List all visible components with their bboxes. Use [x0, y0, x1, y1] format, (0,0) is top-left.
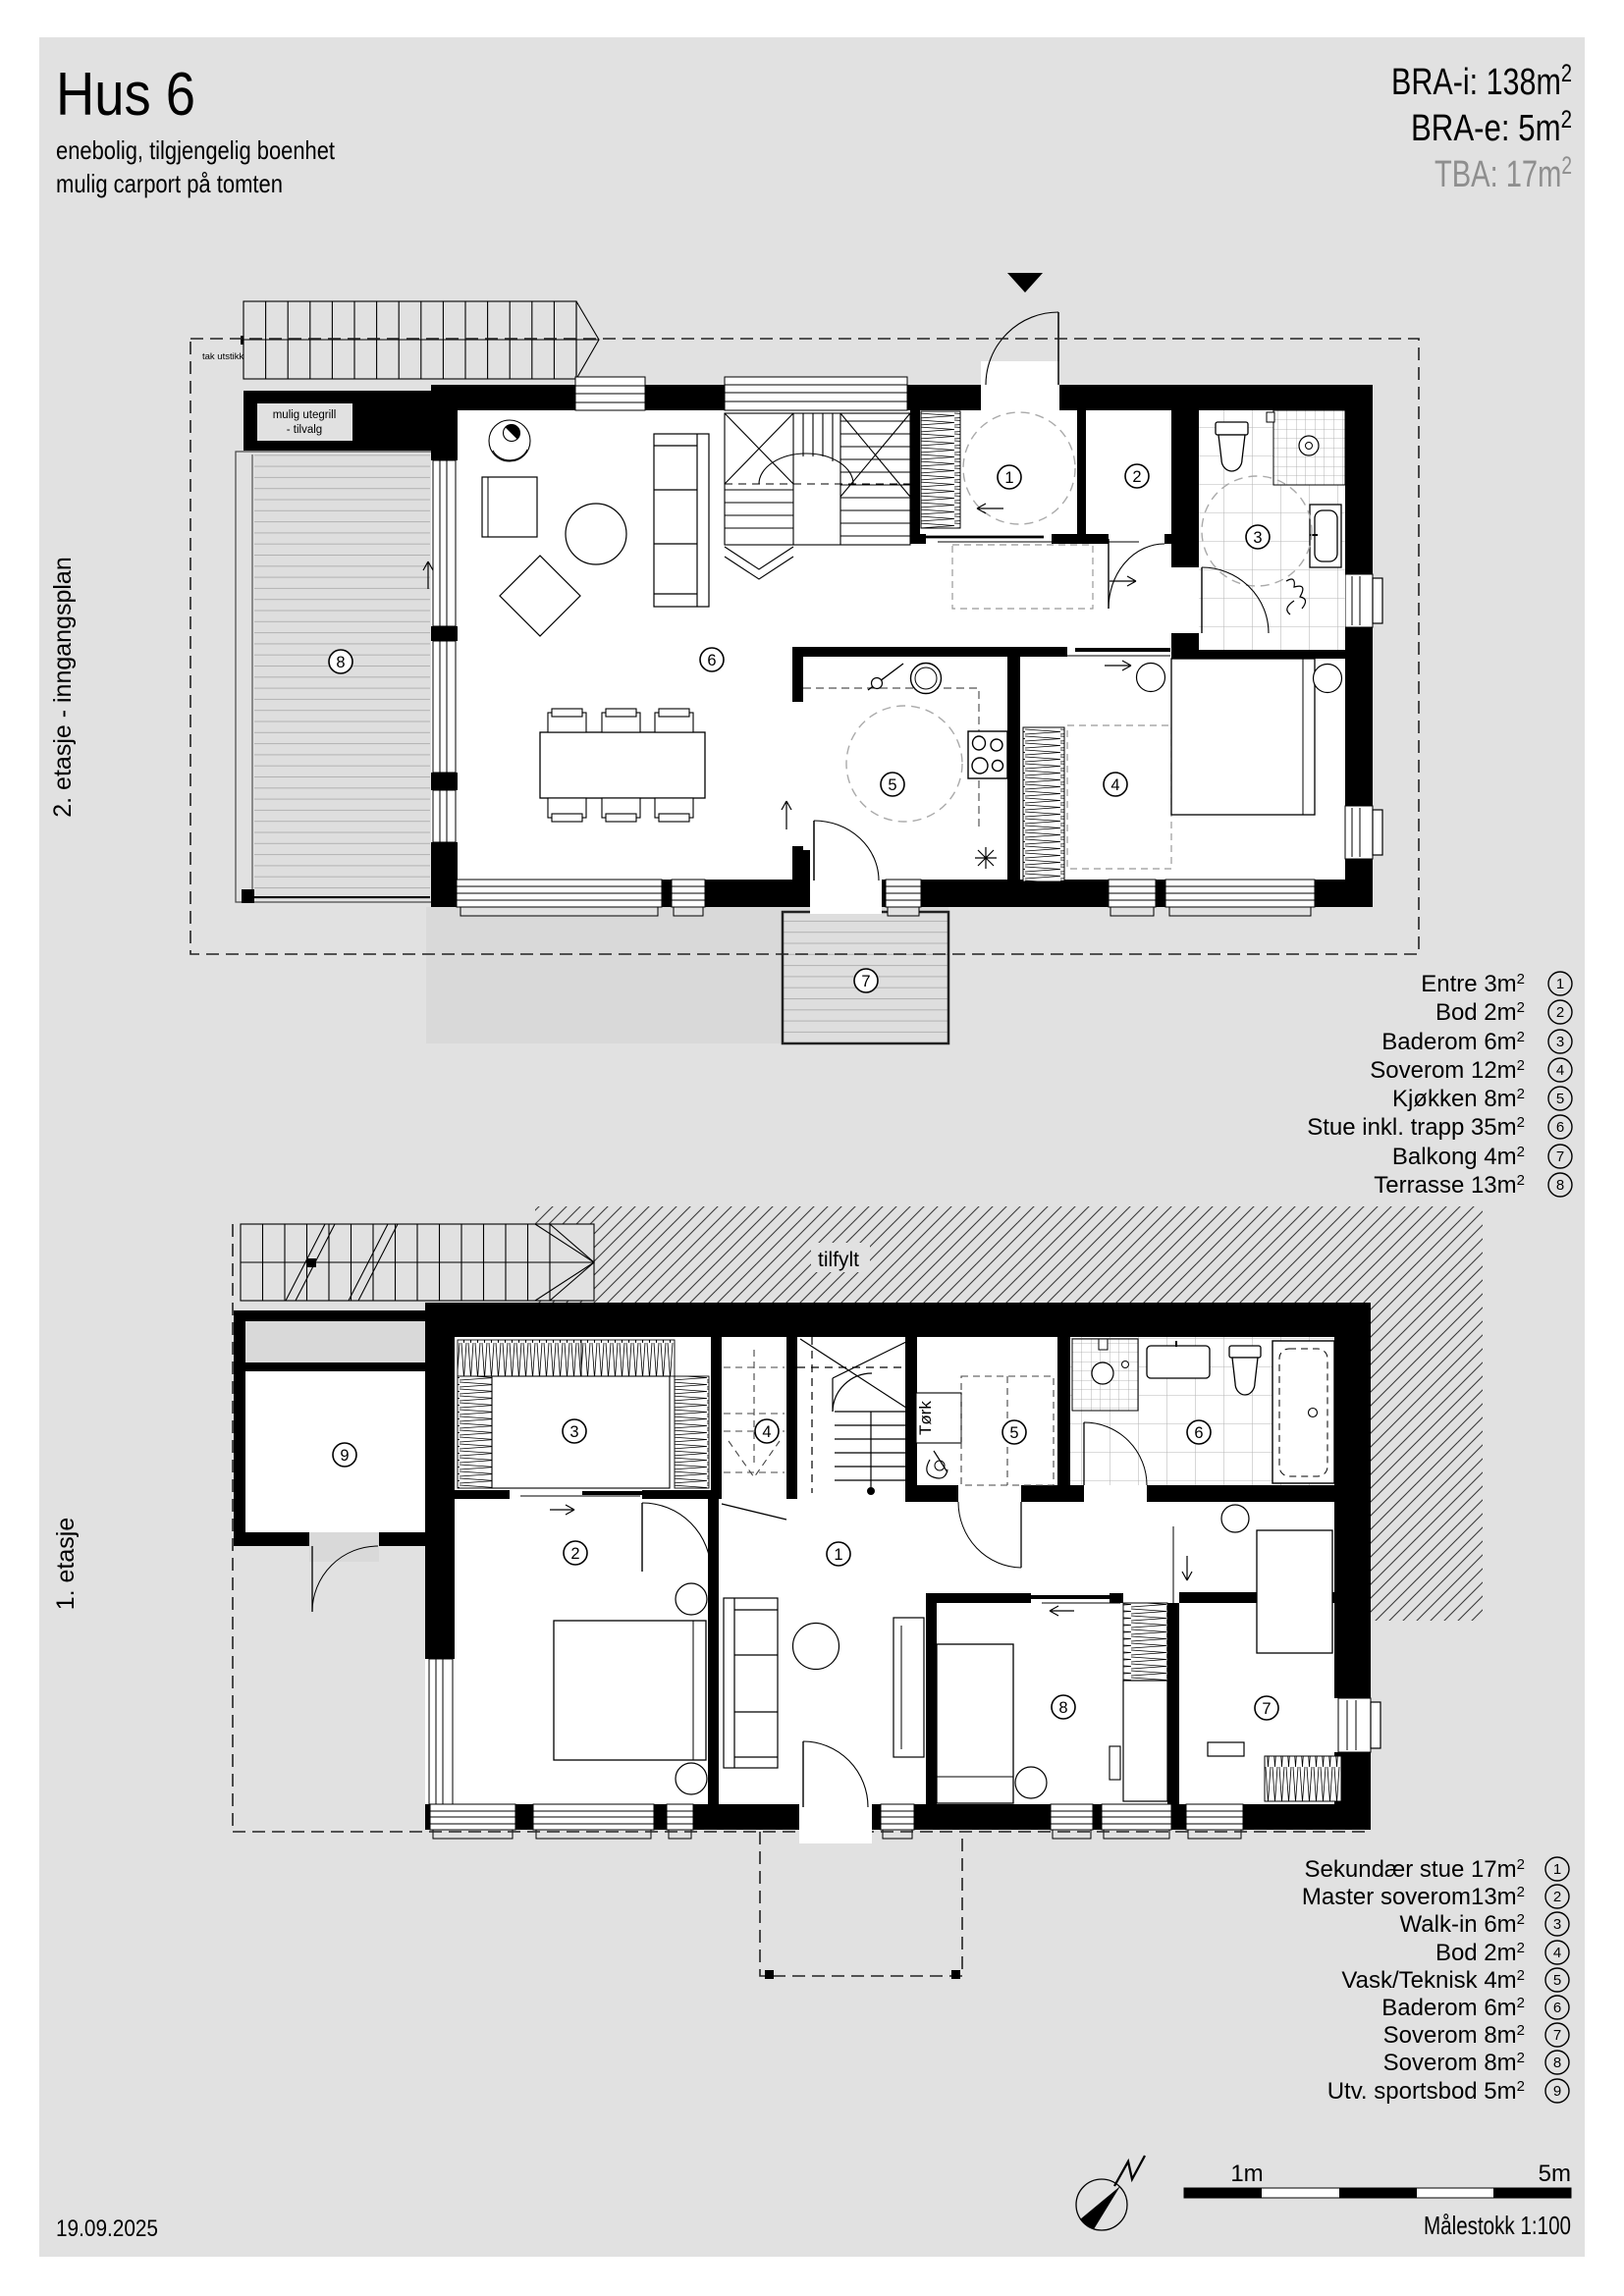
svg-text:2. etasje - inngangsplan: 2. etasje - inngangsplan — [49, 557, 77, 817]
svg-text:5: 5 — [1553, 1972, 1561, 1989]
svg-text:Målestokk 1:100: Målestokk 1:100 — [1424, 2211, 1571, 2240]
svg-text:8: 8 — [1058, 1699, 1067, 1717]
svg-text:6: 6 — [1194, 1424, 1203, 1442]
svg-text:mulig carport på tomten: mulig carport på tomten — [56, 169, 283, 198]
svg-text:2: 2 — [1132, 468, 1141, 486]
svg-text:5: 5 — [1009, 1424, 1018, 1442]
svg-text:Terrasse 13m2: Terrasse 13m2 — [1374, 1172, 1525, 1199]
svg-text:7: 7 — [1553, 2027, 1561, 2044]
svg-text:5: 5 — [1556, 1091, 1564, 1107]
svg-text:7: 7 — [1556, 1148, 1564, 1165]
svg-text:1: 1 — [1004, 469, 1013, 487]
svg-text:4: 4 — [1556, 1062, 1564, 1079]
svg-text:Kjøkken 8m2: Kjøkken 8m2 — [1392, 1086, 1525, 1112]
svg-text:Stue inkl. trapp 35m2: Stue inkl. trapp 35m2 — [1307, 1114, 1525, 1141]
svg-text:Soverom 8m2: Soverom 8m2 — [1383, 2022, 1525, 2049]
svg-text:BRA-i: 138m2: BRA-i: 138m2 — [1391, 60, 1572, 103]
svg-text:3: 3 — [1253, 529, 1262, 547]
svg-text:4: 4 — [1110, 776, 1119, 794]
svg-text:Baderom 6m2: Baderom 6m2 — [1381, 1995, 1525, 2021]
svg-text:8: 8 — [1556, 1177, 1564, 1194]
svg-text:Tørk: Tørk — [916, 1401, 935, 1435]
svg-text:Soverom 12m2: Soverom 12m2 — [1370, 1057, 1525, 1084]
svg-text:8: 8 — [1553, 2055, 1561, 2071]
svg-text:3: 3 — [569, 1423, 578, 1441]
svg-text:Soverom 8m2: Soverom 8m2 — [1383, 2050, 1525, 2076]
svg-text:Bod 2m2: Bod 2m2 — [1435, 1940, 1525, 1966]
svg-text:Sekundær stue 17m2: Sekundær stue 17m2 — [1305, 1856, 1525, 1883]
svg-text:9: 9 — [340, 1447, 349, 1465]
svg-text:Vask/Teknisk 4m2: Vask/Teknisk 4m2 — [1341, 1967, 1525, 1994]
svg-text:19.09.2025: 19.09.2025 — [56, 2216, 158, 2242]
svg-text:Entre 3m2: Entre 3m2 — [1421, 971, 1525, 997]
svg-text:Walk-in 6m2: Walk-in 6m2 — [1400, 1911, 1525, 1938]
svg-text:Master soverom13m2: Master soverom13m2 — [1302, 1884, 1525, 1910]
svg-text:5: 5 — [888, 776, 896, 794]
svg-text:6: 6 — [1556, 1119, 1564, 1136]
svg-text:8: 8 — [336, 654, 345, 671]
svg-text:Baderom 6m2: Baderom 6m2 — [1381, 1029, 1525, 1055]
svg-text:1: 1 — [1553, 1861, 1561, 1878]
svg-text:BRA-e: 5m2: BRA-e: 5m2 — [1411, 106, 1572, 149]
svg-text:2: 2 — [570, 1545, 579, 1563]
svg-text:tak utstikk: tak utstikk — [202, 351, 244, 362]
svg-text:enebolig, tilgjengelig boenhet: enebolig, tilgjengelig boenhet — [56, 135, 336, 165]
svg-text:2: 2 — [1556, 1004, 1564, 1021]
svg-text:6: 6 — [1553, 2000, 1561, 2016]
svg-text:1m: 1m — [1230, 2161, 1263, 2187]
svg-text:7: 7 — [1262, 1700, 1271, 1718]
svg-text:7: 7 — [861, 973, 870, 990]
svg-text:3: 3 — [1556, 1034, 1564, 1050]
svg-text:4: 4 — [762, 1423, 771, 1441]
svg-text:Bod 2m2: Bod 2m2 — [1435, 999, 1525, 1026]
svg-text:5m: 5m — [1539, 2161, 1571, 2187]
svg-text:tilfylt: tilfylt — [818, 1249, 859, 1271]
svg-text:9: 9 — [1553, 2083, 1561, 2100]
svg-text:6: 6 — [707, 652, 716, 669]
svg-text:Utv. sportsbod 5m2: Utv. sportsbod 5m2 — [1327, 2078, 1525, 2105]
svg-text:Hus 6: Hus 6 — [56, 61, 195, 129]
svg-text:TBA: 17m2: TBA: 17m2 — [1435, 152, 1572, 195]
svg-text:mulig utegrill: mulig utegrill — [273, 409, 337, 421]
svg-text:1. etasje: 1. etasje — [52, 1518, 80, 1611]
svg-text:3: 3 — [1553, 1916, 1561, 1933]
svg-text:1: 1 — [834, 1546, 842, 1564]
svg-text:1: 1 — [1556, 976, 1564, 992]
svg-text:- tilvalg: - tilvalg — [287, 424, 322, 436]
svg-text:2: 2 — [1553, 1889, 1561, 1905]
svg-text:4: 4 — [1553, 1945, 1561, 1961]
svg-text:Balkong 4m2: Balkong 4m2 — [1392, 1144, 1525, 1170]
